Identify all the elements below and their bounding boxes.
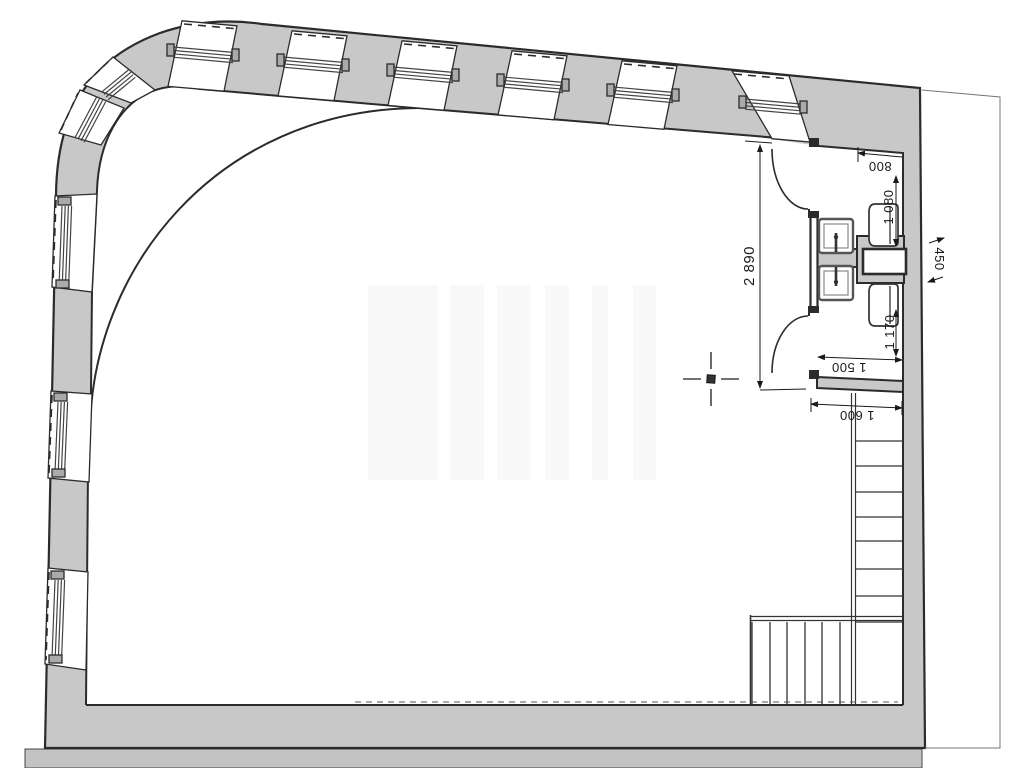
wc-block	[772, 138, 906, 392]
left-windows	[45, 194, 97, 670]
door-top	[772, 138, 819, 218]
dimension-label: 800	[868, 159, 891, 174]
ground-strip	[25, 749, 922, 768]
floor-plan-canvas: 2 890 800 1 080 1 170 1 500 1 600	[0, 0, 1024, 768]
window-left-3	[45, 568, 88, 670]
sink-bottom	[819, 266, 853, 300]
door-top-jamb	[809, 138, 819, 147]
stair-treads-vertical-run	[856, 441, 903, 622]
dimension-label: 1 080	[881, 189, 896, 224]
door-bottom-jamb	[809, 370, 819, 379]
shaft-opening	[863, 249, 906, 274]
faucet-top	[834, 235, 838, 239]
property-line	[922, 90, 1000, 748]
faucet-bottom	[834, 280, 838, 284]
dimension-1170: 1 170	[882, 310, 897, 356]
window-left-1	[52, 194, 97, 292]
survey-cross-marker	[683, 352, 739, 406]
sink-partition-wall	[811, 217, 818, 308]
dimension-450: 450	[928, 238, 947, 282]
wc-bottom-wall	[817, 377, 903, 392]
stair-stringer	[852, 393, 856, 705]
sink-top	[819, 219, 853, 253]
floor-plan-page: 2 890 800 1 080 1 170 1 500 1 600	[0, 0, 1024, 768]
interior-wall-face	[86, 86, 903, 705]
stairs	[751, 393, 904, 705]
dimension-label: 450	[932, 247, 947, 270]
door-bottom	[772, 307, 819, 379]
dimension-label: 1 170	[882, 314, 897, 349]
dimension-label: 2 890	[741, 246, 758, 286]
watermark	[368, 285, 656, 480]
dimension-label: 1 500	[831, 360, 866, 375]
window-left-2	[48, 391, 92, 482]
stair-treads-bottom-run	[752, 622, 840, 705]
dimension-1600: 1 600	[811, 398, 902, 423]
dimension-1500: 1 500	[818, 357, 902, 375]
dimension-label: 1 600	[839, 408, 874, 423]
stair-railing	[751, 615, 904, 705]
